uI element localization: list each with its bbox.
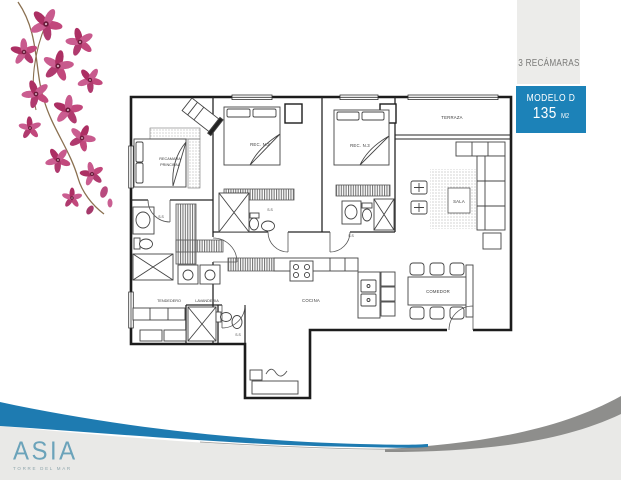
label-bath: S.S [348,234,354,238]
label-kitchen: COCINA [302,298,320,303]
label-terrace: TERRAZA [441,115,462,120]
label-bedroom2: REC. N.2 [250,142,270,147]
brochure-page: RECAMARA PRINCIPAL REC. N.2 REC. N.3 TER… [0,0,621,480]
label-bath: S.S [267,208,273,212]
label-master-bedroom: RECAMARA [159,157,181,161]
label-bath: S.S [158,215,164,219]
label-master-bedroom: PRINCIPAL [160,163,180,167]
asia-logo: ASIA [13,439,78,465]
label-drying: TENDEDERO [157,299,181,303]
label-dining: COMEDOR [426,289,450,294]
side-panel-band [517,0,580,84]
label-bath: S.S [235,333,241,337]
label-living: SALA [453,199,465,204]
bed-bedroom2 [224,107,280,165]
brand-tagline: TORRE DEL MAR [13,466,78,471]
bed-bedroom3 [334,110,389,165]
model-name: MODELO D [521,93,581,104]
area-value: 135 [533,105,557,122]
model-badge: MODELO D 135 M2 [516,86,586,133]
area-unit: M2 [561,113,569,120]
label-bedroom3: REC. N.3 [350,143,370,148]
footer-swoosh [0,380,621,480]
model-area: 135 M2 [521,105,581,123]
bedrooms-count-label: 3 RECÁMARAS [512,58,586,69]
label-laundry: LAVANDERIA [195,299,219,303]
brand-block: ASIA TORRE DEL MAR [13,440,78,471]
